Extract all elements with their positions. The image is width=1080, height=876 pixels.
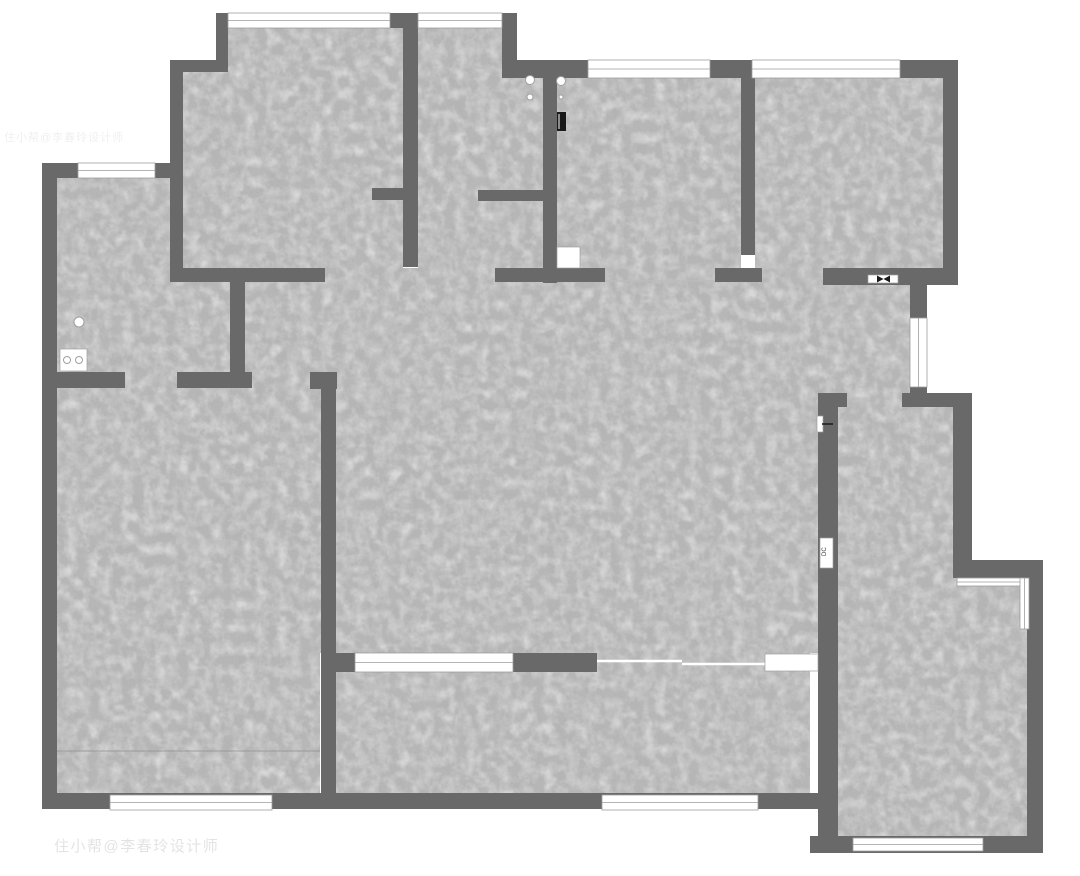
wall-segment — [42, 163, 57, 809]
wall-segment — [943, 60, 958, 283]
floor-area — [810, 283, 912, 393]
watermark-text: 住小帮@李春玲设计师 — [4, 130, 124, 144]
fixture-box — [557, 247, 580, 268]
floor-area — [830, 562, 1027, 836]
watermark-text: 住小帮@李春玲设计师 — [54, 838, 219, 855]
wall-segment — [230, 280, 245, 372]
floor-area — [418, 28, 502, 78]
wall-segment — [818, 395, 838, 853]
wall-segment — [478, 190, 543, 201]
floor-area — [755, 78, 943, 268]
meter-bar-icon — [557, 112, 566, 131]
wall-segment — [372, 188, 403, 200]
wall-segment — [715, 268, 762, 282]
wall-segment — [403, 13, 418, 267]
floor-area — [57, 372, 320, 797]
wall-segment — [335, 653, 355, 672]
floor-plan-page: DC 住小帮@李春玲设计师住小帮@李春玲设计师 — [0, 0, 1080, 876]
plumbing-point-icon — [527, 94, 533, 100]
wall-segment — [953, 405, 972, 578]
wall-segment — [321, 388, 336, 794]
floor-area — [228, 28, 403, 72]
wall-segment — [1027, 560, 1043, 853]
wall-segment — [902, 393, 972, 407]
wall-segment — [170, 268, 325, 282]
floor-area — [830, 405, 953, 580]
floor-areas — [57, 28, 1027, 836]
floor-area — [418, 72, 543, 282]
wall-segment — [177, 372, 252, 388]
plumbing-point-icon — [557, 77, 566, 86]
plumbing-point-icon — [526, 76, 535, 85]
wall-segment — [42, 372, 125, 388]
floor-area — [838, 393, 912, 407]
wall-segment — [310, 372, 337, 389]
wall-segment — [710, 60, 752, 78]
plumbing-point-icon — [74, 317, 84, 327]
plumbing-point-icon — [559, 95, 563, 99]
wall-segment — [390, 13, 403, 28]
floor-plan: DC 住小帮@李春玲设计师住小帮@李春玲设计师 — [0, 0, 1080, 876]
wall-segment — [543, 72, 557, 283]
fixture-box — [765, 654, 818, 671]
floor-area — [335, 653, 810, 795]
wall-label: DC — [822, 547, 828, 556]
wall-segment — [495, 268, 605, 282]
floor-area — [557, 78, 741, 282]
wall-segment — [741, 78, 755, 255]
wall-segment — [513, 653, 597, 672]
